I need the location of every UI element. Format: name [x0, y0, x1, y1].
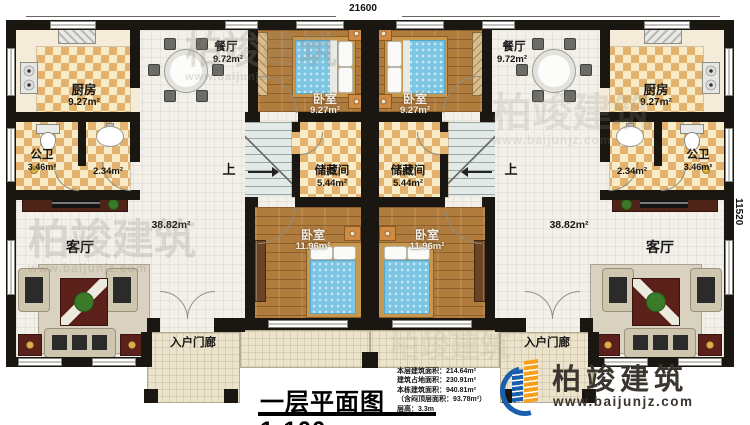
stat-value: 93.78m²）: [453, 396, 486, 403]
chair-icon: [164, 38, 176, 50]
living-area-label: 38.82m²: [539, 220, 599, 231]
chair-icon: [564, 38, 576, 50]
chair-icon: [564, 90, 576, 102]
dining-table-icon: [164, 49, 208, 93]
porch-name-label: 入户门廊: [158, 338, 228, 350]
paved-area: [240, 330, 370, 368]
bedroom-main-area-label: 11.96m²: [403, 242, 451, 252]
storage-area-label: 5.44m²: [386, 179, 430, 189]
window: [296, 21, 344, 29]
chair-icon: [196, 90, 208, 102]
wall: [130, 30, 140, 88]
armchair-icon: [18, 268, 50, 312]
plant-icon: [646, 292, 666, 312]
wall: [600, 122, 610, 162]
wall: [130, 122, 140, 162]
wall: [440, 122, 448, 132]
kitchen-area-label: 9.27m²: [60, 98, 108, 108]
floor-plan: 21600 11520: [0, 0, 750, 425]
stove-icon: [20, 62, 38, 94]
wall: [600, 30, 610, 88]
wall: [214, 318, 245, 332]
wall: [248, 30, 258, 112]
window: [18, 358, 62, 366]
wall: [295, 197, 370, 207]
wall: [440, 154, 448, 197]
wall: [580, 318, 593, 332]
wall: [78, 122, 86, 166]
washroom-area-label: 2.34m²: [610, 167, 654, 177]
stair-arrow-head: [272, 167, 279, 177]
window: [482, 21, 515, 29]
armchair-icon: [106, 268, 138, 312]
window: [725, 128, 733, 182]
stat-label: 本栋建筑面积：: [397, 387, 446, 394]
range-hood-icon: [644, 28, 682, 44]
storage-area-label: 5.44m²: [310, 179, 354, 189]
chair-icon: [580, 64, 592, 76]
bathroom-area-label: 3.46m²: [676, 163, 720, 172]
dining-area-label: 9.72m²: [490, 55, 534, 65]
stair-arrow: [248, 171, 272, 173]
stat-label: 建筑占地面积：: [397, 377, 446, 384]
washroom-area-label: 2.34m²: [86, 167, 130, 177]
stair-up-label: 上: [502, 163, 520, 176]
wall: [292, 154, 300, 197]
bedroom-top-name-label: 卧室: [393, 93, 437, 105]
armchair-icon: [690, 268, 722, 312]
brand-site: www.baijunjz.com: [553, 394, 694, 409]
living-name-label: 客厅: [58, 240, 102, 254]
bedroom-top-area-label: 9.27m²: [393, 106, 437, 116]
tv-icon: [52, 199, 100, 208]
party-wall: [370, 20, 379, 330]
stair-arrow: [468, 171, 492, 173]
window: [644, 21, 690, 29]
chair-icon: [148, 64, 160, 76]
wall: [654, 122, 662, 166]
bed-mattress: [408, 40, 445, 94]
wall: [480, 112, 495, 122]
brand-logo: 柏竣建筑 www.baijunjz.com: [498, 348, 722, 420]
bed-mattress: [295, 40, 332, 94]
right-dimension-label: 11520: [733, 198, 744, 254]
wall: [245, 207, 255, 330]
top-dimension-label: 21600: [338, 3, 388, 14]
wall: [141, 332, 152, 367]
paved-area: [370, 330, 500, 368]
sink-icon: [96, 126, 124, 147]
pillow-icon: [338, 41, 353, 67]
bedroom-top-name-label: 卧室: [303, 93, 347, 105]
kitchen-area-label: 9.27m²: [632, 98, 680, 108]
dining-name-label: 餐厅: [492, 42, 536, 54]
range-hood-icon: [58, 28, 96, 44]
window: [7, 48, 15, 96]
wall: [482, 30, 492, 112]
chair-icon: [212, 64, 224, 76]
stove-icon: [702, 62, 720, 94]
bathroom-name-label: 公卫: [20, 150, 64, 162]
chair-icon: [516, 64, 528, 76]
stat-label: （含闷顶层面积：: [397, 396, 453, 403]
bedroom-main-area-label: 11.96m²: [289, 242, 337, 252]
unit-left: 厨房 9.27m² 餐厅 9.72m² 卧室 9.27m² 公卫 3.46m² …: [6, 20, 370, 412]
wall: [485, 207, 495, 330]
kitchen-name-label: 厨房: [632, 84, 680, 97]
window: [268, 320, 348, 328]
brand-name: 柏竣建筑: [552, 356, 688, 398]
dimension-line: [402, 16, 720, 17]
wall: [370, 197, 445, 207]
wall: [482, 197, 495, 207]
dimension-line: [26, 16, 336, 17]
pillow-icon: [387, 67, 402, 93]
bed-mattress: [384, 260, 430, 314]
stair-arrow-head: [461, 167, 468, 177]
stat-value: 230.91m²: [446, 377, 476, 384]
bedroom-main-name-label: 卧室: [291, 229, 335, 241]
wall: [6, 190, 140, 200]
wall: [6, 112, 140, 122]
dining-area-label: 9.72m²: [206, 55, 250, 65]
armchair-icon: [602, 268, 634, 312]
bedroom-main-name-label: 卧室: [405, 229, 449, 241]
brand-logo-building-icon: [512, 369, 523, 403]
wall: [245, 112, 260, 122]
bed-mattress: [310, 260, 356, 314]
stat-value: 3.3m: [418, 406, 434, 413]
window: [725, 48, 733, 96]
wall: [147, 318, 160, 332]
bathroom-area-label: 3.46m²: [20, 163, 64, 172]
pillow-icon: [338, 67, 353, 93]
wall: [245, 197, 258, 207]
nightstand-icon: [379, 226, 396, 241]
living-name-label: 客厅: [638, 240, 682, 254]
storage-name-label: 储藏间: [383, 166, 433, 178]
chair-icon: [164, 90, 176, 102]
end-table-icon: [18, 334, 42, 356]
bed-sheet: [403, 40, 410, 94]
sink-icon: [616, 126, 644, 147]
pier: [370, 352, 378, 368]
dining-table-icon: [532, 49, 576, 93]
brand-logo-building-icon: [524, 359, 538, 403]
pier: [362, 352, 370, 368]
storage-name-label: 储藏间: [307, 166, 357, 178]
dining-name-label: 餐厅: [204, 42, 248, 54]
window: [392, 320, 472, 328]
porch-column: [224, 389, 238, 403]
plant-icon: [108, 199, 119, 210]
stair-up-label: 上: [220, 163, 238, 176]
window: [92, 358, 136, 366]
stat-label: 本层建筑面积：: [397, 368, 446, 375]
party-wall: [361, 20, 370, 330]
bed-sheet: [330, 40, 337, 94]
kitchen-name-label: 厨房: [60, 84, 108, 97]
wall: [600, 112, 734, 122]
wall: [495, 318, 526, 332]
window: [396, 21, 444, 29]
wall: [600, 190, 734, 200]
window: [7, 240, 15, 295]
nightstand-icon: [344, 226, 361, 241]
stair: [245, 122, 292, 197]
bedroom-top-area-label: 9.27m²: [303, 106, 347, 116]
wall: [292, 122, 300, 132]
stat-value: 940.81m²: [446, 387, 476, 394]
window: [7, 128, 15, 182]
porch-column: [144, 389, 158, 403]
plant-icon: [621, 199, 632, 210]
sofa-icon: [44, 328, 116, 358]
stat-label: 层高：: [397, 406, 418, 413]
window: [50, 21, 96, 29]
plant-icon: [74, 292, 94, 312]
bathroom-name-label: 公卫: [676, 150, 720, 162]
window: [225, 21, 258, 29]
tv-icon: [640, 199, 688, 208]
stat-value: 214.64m²: [446, 368, 476, 375]
stair: [448, 122, 495, 197]
window: [725, 240, 733, 295]
chair-icon: [532, 90, 544, 102]
pillow-icon: [387, 41, 402, 67]
living-area-label: 38.82m²: [141, 220, 201, 231]
